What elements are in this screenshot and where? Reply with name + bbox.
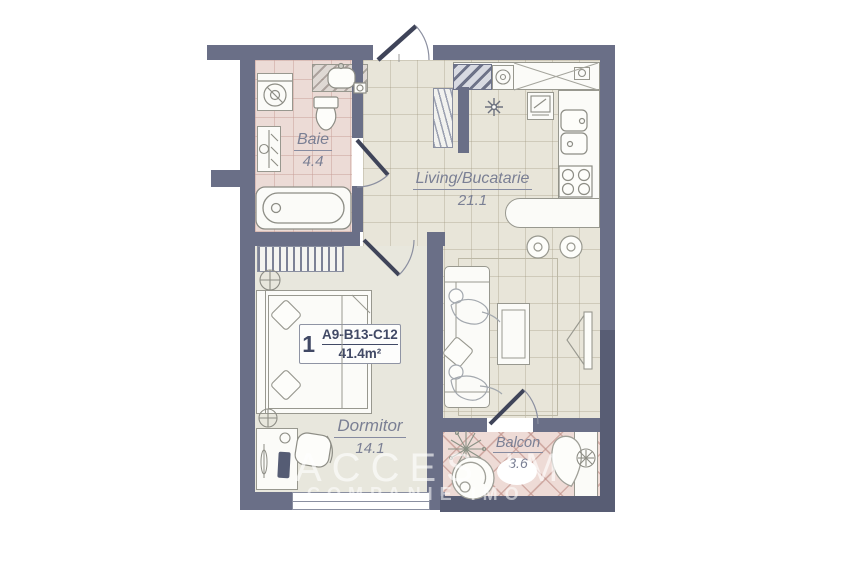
window-pane-line — [293, 501, 429, 502]
wall-kitchen-stub — [458, 87, 469, 153]
desk — [256, 428, 298, 490]
wall-right-lower — [600, 330, 615, 510]
room-name-living: Living/Bucatarie — [413, 170, 533, 190]
wall-bedroom-top-left — [240, 232, 360, 246]
sofa — [444, 266, 490, 408]
unit-label-box: 1 A9-B13-C12 41.4m² — [299, 324, 401, 364]
unit-info: A9-B13-C12 41.4m² — [322, 327, 398, 361]
room-area-baie: 4.4 — [303, 153, 324, 170]
unit-number: 1 — [302, 333, 315, 356]
unit-code: A9-B13-C12 — [322, 327, 398, 345]
room-name-balcon: Balcon — [493, 435, 543, 453]
room-name-dormitor: Dormitor — [334, 416, 405, 438]
wall-bottom-left — [240, 492, 292, 510]
room-label-baie: Baie 4.4 — [263, 131, 363, 170]
kitchen-corner-box — [574, 67, 590, 80]
wall-balcony-left-seg — [443, 418, 487, 432]
room-label-balcon: Balcon 3.6 — [483, 435, 553, 471]
wardrobe — [257, 246, 344, 272]
dishwasher — [492, 65, 514, 90]
coffee-table — [497, 303, 530, 365]
floor-plan: Baie 4.4 Living/Bucatarie 21.1 Dormitor … — [0, 0, 843, 570]
bedroom-window — [292, 492, 430, 510]
bed-headboard — [256, 290, 266, 414]
oven — [527, 92, 554, 120]
room-area-balcon: 3.6 — [508, 455, 527, 471]
room-area-dormitor: 14.1 — [355, 440, 384, 457]
wall-bath-right-lower — [352, 186, 363, 232]
kitchen-right-counter — [558, 90, 600, 205]
wall-balcony-right-seg — [533, 418, 600, 432]
entrance-opening — [373, 45, 433, 60]
washing-machine — [257, 73, 293, 111]
room-area-living: 21.1 — [458, 192, 487, 209]
wall-left-pier — [211, 170, 240, 187]
balcony-bench — [574, 430, 598, 498]
wall-bath-right-upper — [352, 60, 363, 138]
room-label-dormitor: Dormitor 14.1 — [320, 416, 420, 457]
room-name-baie: Baie — [294, 131, 332, 151]
room-label-living: Living/Bucatarie 21.1 — [385, 170, 560, 209]
hall-shelf — [433, 88, 453, 148]
wall-bottom-balcony — [440, 496, 615, 512]
unit-area: 41.4m² — [339, 346, 382, 362]
wall-left — [240, 60, 255, 510]
wall-bedroom-living — [427, 232, 443, 496]
